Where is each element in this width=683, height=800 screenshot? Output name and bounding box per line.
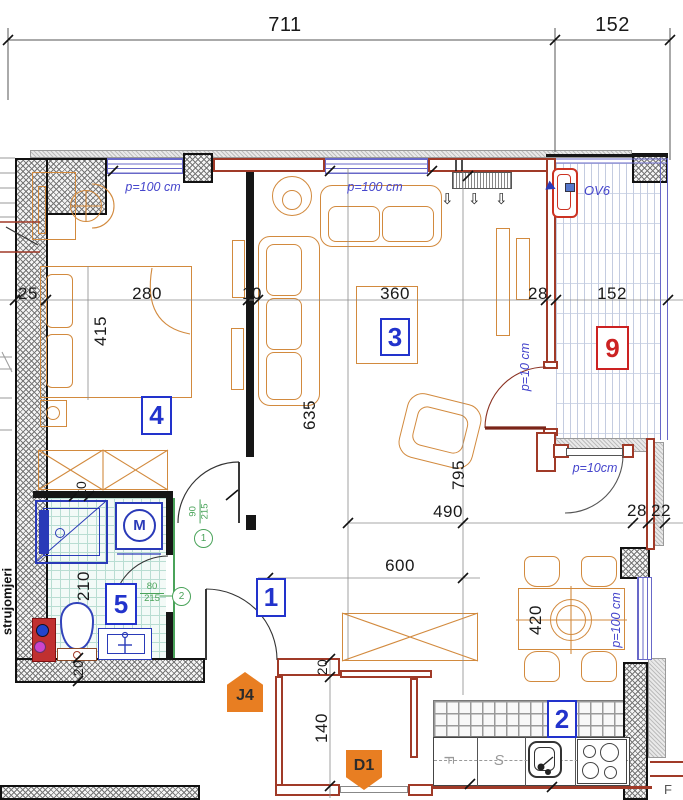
entry-door-leaf [340,786,408,793]
dim-152-balcony: 152 [582,284,642,304]
window-living [325,158,428,174]
marker-j4: J4 [227,672,263,712]
dim-360: 360 [365,284,425,304]
wall-right-mid-pier [620,547,650,579]
kitchen-backsplash-tiles [433,700,630,737]
bed-pillow-1 [46,274,73,328]
bathroom-tile-edge [173,498,175,660]
counter-div-3 [575,737,576,786]
ov6-unit-inner [557,174,571,210]
balcony-door-frame-top [543,361,558,369]
sideboard-balcony-wall [496,228,510,336]
door2-tag: 2 [172,587,191,606]
wall-partition-foot [246,515,256,530]
wall-hall-bottom [277,658,340,676]
dim-10-bath: 10 [73,476,89,502]
room-label-hall: 1 [256,578,286,617]
room-label-balcony: 9 [596,326,629,370]
floor-plan: ⇩ ⇩ ⇩ M [0,0,683,800]
window-bedroom [107,158,183,174]
dim-711: 711 [240,14,330,37]
door2-size: 80 215 [140,582,164,605]
armchair-cushion [410,404,470,455]
wall-top-pier [183,153,213,183]
stove [577,739,627,784]
top-facade-band [30,150,632,158]
table-plate-inner [556,605,586,635]
sideboard-partition-2 [231,328,244,390]
heater-dial-blue [36,624,49,637]
wall-corridor-left [275,676,283,796]
wall-bathroom-top [33,491,173,498]
dim-635: 635 [300,393,320,437]
room-label-bathroom: 5 [105,583,137,625]
burner-3 [582,762,599,779]
window-label-side-door: p=10cm [566,461,624,475]
wall-bottom-left [0,785,200,800]
sofa-v-cushion-3 [266,352,302,400]
window-label-bedroom: p=100 cm [118,180,188,194]
dim-795: 795 [449,453,469,497]
sofa-v-cushion-2 [266,298,302,350]
dim-25: 25 [10,284,46,304]
wall-right-below-balcony [646,438,655,550]
wall-entry-bottom-right [408,784,433,796]
vanity-basin [107,634,145,654]
sofa-h-cushion-1 [328,206,380,242]
dim-280: 280 [117,284,177,304]
desk-shelf [38,186,46,234]
wall-hall-bottom-thin [340,670,432,678]
wall-bathroom-right-lower [166,612,173,660]
wardrobe-hall [342,613,478,661]
kitchen-sink [528,741,562,778]
dim-152-top: 152 [575,14,650,37]
side-door-leaf [566,448,623,456]
vent-arrow-2: ⇩ [468,190,481,208]
door1-tag: 1 [194,529,213,548]
window-label-living: p=100 cm [340,180,410,194]
vent-arrow-1: ⇩ [441,190,454,208]
wall-top-a [213,158,325,172]
burner-4 [604,766,617,779]
dim-140: 140 [312,706,332,750]
armchair [395,390,485,472]
wall-partition-bedroom [246,172,254,457]
wall-top-b [428,158,553,172]
chair-1 [524,556,560,587]
burner-2 [600,743,619,762]
dim-20-hall: 20 [314,654,330,680]
wall-entry-bottom-left [275,784,340,796]
shower-inner [43,508,100,556]
nightstand-lamp [46,406,60,420]
right-facade-band-low [648,658,666,758]
door2-height: 215 [140,593,164,605]
balcony-right-glazing [660,158,668,440]
ov6-unit [552,168,578,218]
dim-600: 600 [370,556,430,576]
chair-2 [581,556,617,587]
dim-28: 28 [518,284,558,304]
dim-20-bath: 20 [70,655,86,681]
pouf-inner [282,190,302,210]
room-label-kitchen: 2 [547,700,577,738]
room-label-bedroom: 4 [141,396,172,435]
dim-420: 420 [526,598,546,642]
heater-dial-magenta [34,641,46,653]
washer-drum: M [123,509,156,542]
vanity-sink [98,628,152,660]
window-kitchen [637,577,652,660]
window-label-balcony-door: p=10 cm [518,336,532,398]
sofa-v-cushion-1 [266,244,302,296]
counter-div-2 [525,737,526,786]
dim-22-right: 22 [646,501,676,521]
wall-corridor-right [410,678,418,758]
counter-div-1 [477,737,478,786]
door2-width: 80 [140,582,164,593]
balcony-top-edge [546,154,668,157]
radiator [452,172,512,189]
sink-basin [534,747,555,771]
neighbor-line-2 [650,775,683,777]
room-label-living: 3 [380,318,410,356]
burner-1 [583,745,596,758]
door1-width: 90 [189,499,200,523]
wall-bathroom-right-upper [166,491,173,555]
side-door-frame-right [622,444,634,458]
dim-10: 10 [236,284,268,304]
wardrobe-bedroom [38,450,168,490]
desk-chair [70,190,102,222]
dim-490: 490 [418,502,478,522]
strujomjeri-label: strujomjeri [0,559,15,645]
dim-415: 415 [91,309,111,353]
ov6-label: OV6 [581,183,613,198]
sofa-h-cushion-2 [382,206,434,242]
marker-d1: D1 [346,750,382,790]
chair-3 [524,651,560,682]
shower [35,500,108,564]
bed-pillow-2 [46,334,73,388]
door1-height: 215 [200,499,212,523]
dim-210: 210 [74,564,94,608]
vent-arrow-3: ⇩ [495,190,508,208]
counter-label-s: S [494,752,504,769]
ov6-socket-icon [565,183,575,192]
shower-head [55,528,65,538]
kitchen-bottom-line [433,786,652,789]
door1-size: 90 215 [189,499,212,523]
chair-4 [581,651,617,682]
neighbor-line-1 [650,761,683,763]
window-label-kitchen: p=100 cm [609,589,623,651]
washing-machine: M [115,502,163,550]
neighbor-label-f: F [664,782,672,797]
shower-fixture [39,510,49,554]
counter-label-f: F [441,756,457,765]
